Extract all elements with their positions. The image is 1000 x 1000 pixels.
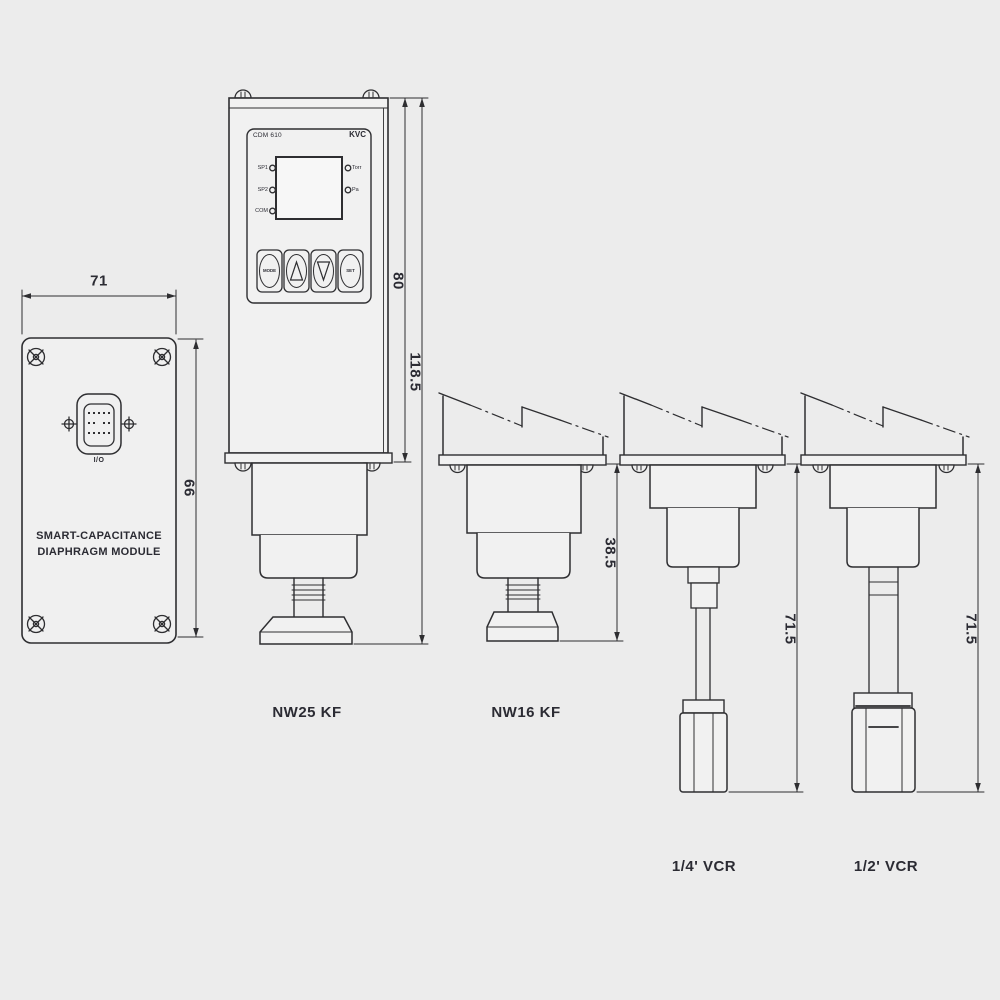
- mode-button-label: MODE: [259, 268, 281, 273]
- variant-nw16-view: [439, 393, 623, 641]
- variant-half-vcr-view: [801, 393, 984, 792]
- dim-label-housing-height: 80: [390, 272, 407, 290]
- variant-label-quarter-vcr: 1/4' VCR: [644, 858, 764, 875]
- dim-module-width: [22, 290, 176, 334]
- dome-screw-icon: [235, 463, 251, 471]
- dome-screw-icon: [632, 465, 647, 473]
- dim-label-module-width: 71: [90, 273, 108, 290]
- dim-label-module-height: 66: [181, 479, 198, 497]
- controller-front-view: [225, 90, 428, 644]
- set-button-label: SET: [340, 268, 362, 273]
- led-label-torr: Torr: [352, 165, 361, 171]
- module-view: [22, 290, 203, 643]
- dim-label-quarter-vcr: 71.5: [782, 613, 799, 644]
- led-label-sp2: SP2: [248, 187, 268, 193]
- line-art: [0, 0, 1000, 1000]
- module-title-line2: DIAPHRAGM MODULE: [22, 545, 176, 560]
- dome-screw-icon: [363, 90, 379, 98]
- sensor-quarter-vcr: [650, 465, 756, 792]
- model-label: CDM 610: [253, 132, 282, 139]
- technical-drawing-sheet: 71 66 I/O SMART-CAPACITANCE DIAPHRAGM MO…: [0, 0, 1000, 1000]
- module-title-line1: SMART-CAPACITANCE: [22, 529, 176, 544]
- led-label-com: COM: [248, 208, 268, 214]
- variant-label-nw16: NW16 KF: [466, 704, 586, 721]
- dim-label-nw16: 38.5: [602, 537, 619, 568]
- brand-logo: KVC: [338, 130, 366, 139]
- sensor-half-vcr: [830, 465, 936, 792]
- dome-screw-icon: [939, 465, 954, 473]
- sensor-nw25: [252, 463, 367, 644]
- io-connector-label: I/O: [77, 457, 121, 464]
- variant-quarter-vcr-view: [620, 393, 803, 792]
- sensor-nw16: [467, 465, 581, 641]
- led-label-pa: Pa: [352, 187, 359, 193]
- dim-label-total-height: 118.5: [407, 352, 424, 391]
- dome-screw-icon: [235, 90, 251, 98]
- variant-label-nw25: NW25 KF: [247, 704, 367, 721]
- dome-screw-icon: [813, 465, 828, 473]
- led-label-sp1: SP1: [248, 165, 268, 171]
- variant-label-half-vcr: 1/2' VCR: [826, 858, 946, 875]
- dome-screw-icon: [450, 465, 465, 473]
- dome-screw-icon: [758, 465, 773, 473]
- dim-label-half-vcr: 71.5: [963, 613, 980, 644]
- display-screen: [276, 157, 342, 219]
